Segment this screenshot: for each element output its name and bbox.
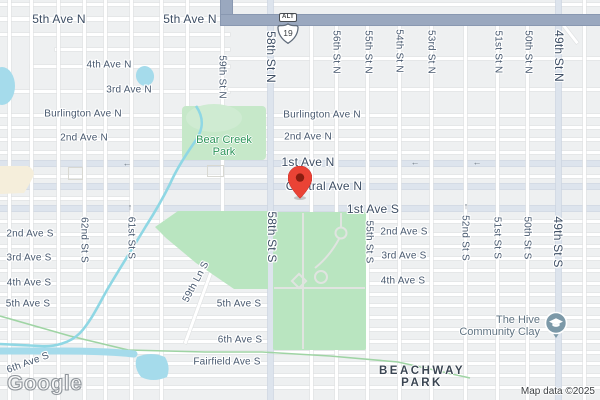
commercial-area [0,166,34,194]
poi-label-line2: Community Clay [425,326,540,339]
map-canvas[interactable]: ALT 19 5th Ave N5th Ave N4th Ave N3rd Av… [0,0,600,400]
dropped-pin-marker[interactable] [288,166,312,200]
park-west-area [155,211,268,289]
us-route-shield-icon: 19 [274,23,302,49]
pond [136,354,169,380]
school-pin-icon[interactable] [543,311,569,341]
bear-creek-park-label: Bear Creek Park [196,134,252,158]
pond [134,64,157,88]
bear-creek-park-label-line2: Park [196,146,252,158]
google-logo[interactable]: Google [7,372,82,396]
bear-creek-park-label-line1: Bear Creek [196,134,252,146]
route-shield-us19: ALT 19 [274,5,302,49]
beachway-park-label-line2: PARK [379,377,465,389]
wetland [186,104,242,132]
poi-label-line1: The Hive [425,314,540,327]
beachway-park-label: BEACHWAY PARK [379,365,465,389]
creek-wide [0,351,134,354]
map-attribution[interactable]: Map data ©2025 [521,386,595,397]
pond [0,67,15,105]
route-number: 19 [274,28,302,38]
beachway-park-label-line1: BEACHWAY [379,365,465,377]
poi-the-hive-community-clay[interactable]: The Hive Community Clay [425,311,569,341]
alt-banner: ALT [279,13,297,22]
poi-label[interactable]: The Hive Community Clay [425,314,540,339]
park-main-area [273,212,366,350]
